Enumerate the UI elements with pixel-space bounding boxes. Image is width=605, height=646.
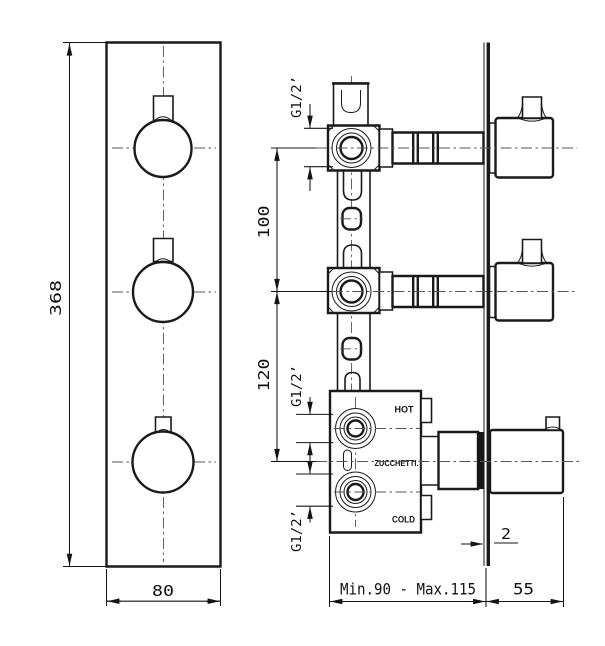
dim-label-55: 55 <box>513 580 534 599</box>
dim-label-g12-cold: G1/2’ <box>290 510 305 552</box>
cartridge-seal-band <box>478 432 484 489</box>
body-bar-upper <box>338 171 371 269</box>
arch-above-body <box>345 373 360 392</box>
dim-label-368: 368 <box>47 280 65 316</box>
dim-label-100: 100 <box>255 206 273 239</box>
brand-label: ZUCCHETTI. <box>375 459 419 468</box>
dim-thread-cold: G1/2’ <box>290 458 333 553</box>
dim-height-368: 368 <box>47 43 107 567</box>
front-knob-bottom-circle <box>133 432 194 493</box>
dim-label-120: 120 <box>255 359 273 392</box>
body-bar-lower <box>338 313 371 391</box>
front-knob-middle-circle <box>133 262 193 322</box>
dim-width-80: 80 <box>107 569 221 606</box>
technical-drawing-page: 368 80 <box>0 0 605 646</box>
cartridge-step <box>421 437 439 486</box>
body-side-tab-top <box>421 399 432 423</box>
handle-top-stem <box>523 97 542 118</box>
slot-below-port1 <box>344 171 362 200</box>
dim-label-depth-range: Min.90 - Max.115 <box>340 580 476 599</box>
cartridge-body <box>439 432 479 489</box>
dim-label-2: 2 <box>501 525 511 543</box>
hot-label: HOT <box>395 405 415 415</box>
top-inlet-stub <box>332 83 370 128</box>
arch-above-port2 <box>344 245 362 268</box>
front-knob-top-circle <box>135 120 192 177</box>
dim-thread-hot: G1/2’ <box>290 365 333 460</box>
outlet-middle-assembly <box>328 240 577 321</box>
shower-valve-technical-drawing: 368 80 <box>0 0 605 646</box>
side-view-group: HOT ZUCCHETTI. COLD G1/2’ <box>255 43 580 608</box>
dim-label-g12-hot: G1/2’ <box>290 365 305 407</box>
thermostatic-body-group: HOT ZUCCHETTI. COLD <box>316 391 580 533</box>
dim-label-g12-top: G1/2’ <box>290 76 305 118</box>
dim-label-80: 80 <box>152 582 174 600</box>
dim-thread-top: G1/2’ <box>290 76 333 191</box>
handle-middle-stem <box>523 240 542 264</box>
cold-label: COLD <box>392 515 415 525</box>
body-side-tab-bottom <box>421 496 432 520</box>
front-view-plate-group: 368 80 <box>47 43 221 607</box>
